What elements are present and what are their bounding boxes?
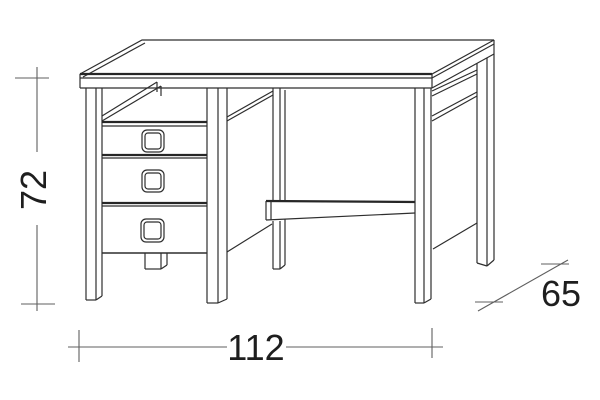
drawer-2-handle xyxy=(142,170,164,192)
drawer-3-handle xyxy=(141,219,164,242)
height-dimension: 72 xyxy=(13,67,55,311)
pedestal-side-panel xyxy=(227,91,273,252)
drawer-stack xyxy=(102,122,207,253)
width-dimension: 112 xyxy=(68,327,443,368)
desktop-right-end-bottom xyxy=(432,54,494,88)
footrest-stretcher xyxy=(266,201,415,220)
height-dimension-label: 72 xyxy=(13,170,54,210)
desk-dimension-drawing: 72 112 65 xyxy=(0,0,600,400)
drawer-1-handle xyxy=(142,130,164,152)
right-side-frame xyxy=(415,54,494,303)
front-left-leg xyxy=(86,88,102,300)
depth-dimension-label: 65 xyxy=(541,273,581,314)
width-dimension-label: 112 xyxy=(227,327,284,368)
front-right-leg xyxy=(415,88,431,303)
middle-front-leg xyxy=(207,88,227,303)
depth-dimension: 65 xyxy=(475,260,581,314)
drawing-svg: 72 112 65 xyxy=(0,0,600,400)
desktop-left-edge-inner-line xyxy=(83,43,145,77)
back-right-leg xyxy=(477,54,494,266)
pedestal-foot-block xyxy=(145,253,167,269)
desktop-right-end-top xyxy=(432,44,494,78)
middle-back-leg xyxy=(273,88,285,269)
right-side-rail xyxy=(433,223,477,249)
left-pedestal xyxy=(86,82,273,303)
desktop xyxy=(80,40,494,88)
right-side-apron xyxy=(432,70,477,121)
